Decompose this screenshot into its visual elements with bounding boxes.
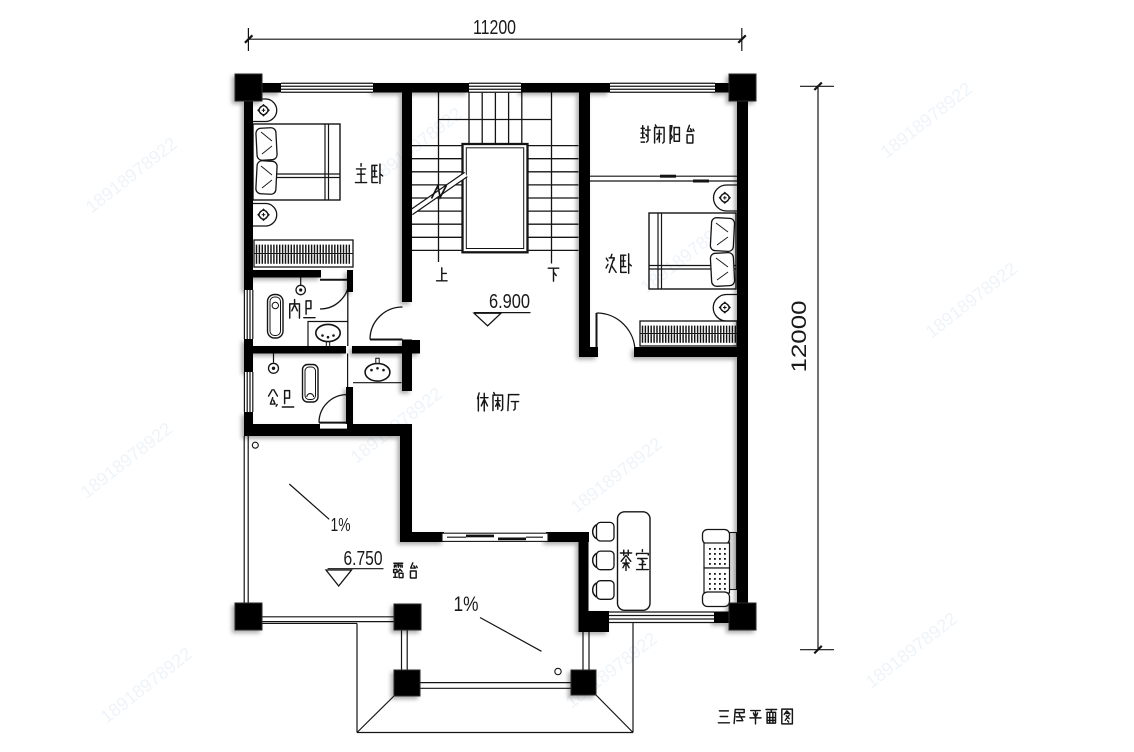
svg-text:12000: 12000 [787, 300, 811, 372]
svg-text:6.900: 6.900 [489, 290, 530, 313]
svg-text:1%: 1% [331, 515, 351, 535]
svg-text:1%: 1% [454, 593, 479, 616]
svg-text:6.750: 6.750 [344, 547, 383, 570]
svg-text:11200: 11200 [473, 16, 516, 39]
